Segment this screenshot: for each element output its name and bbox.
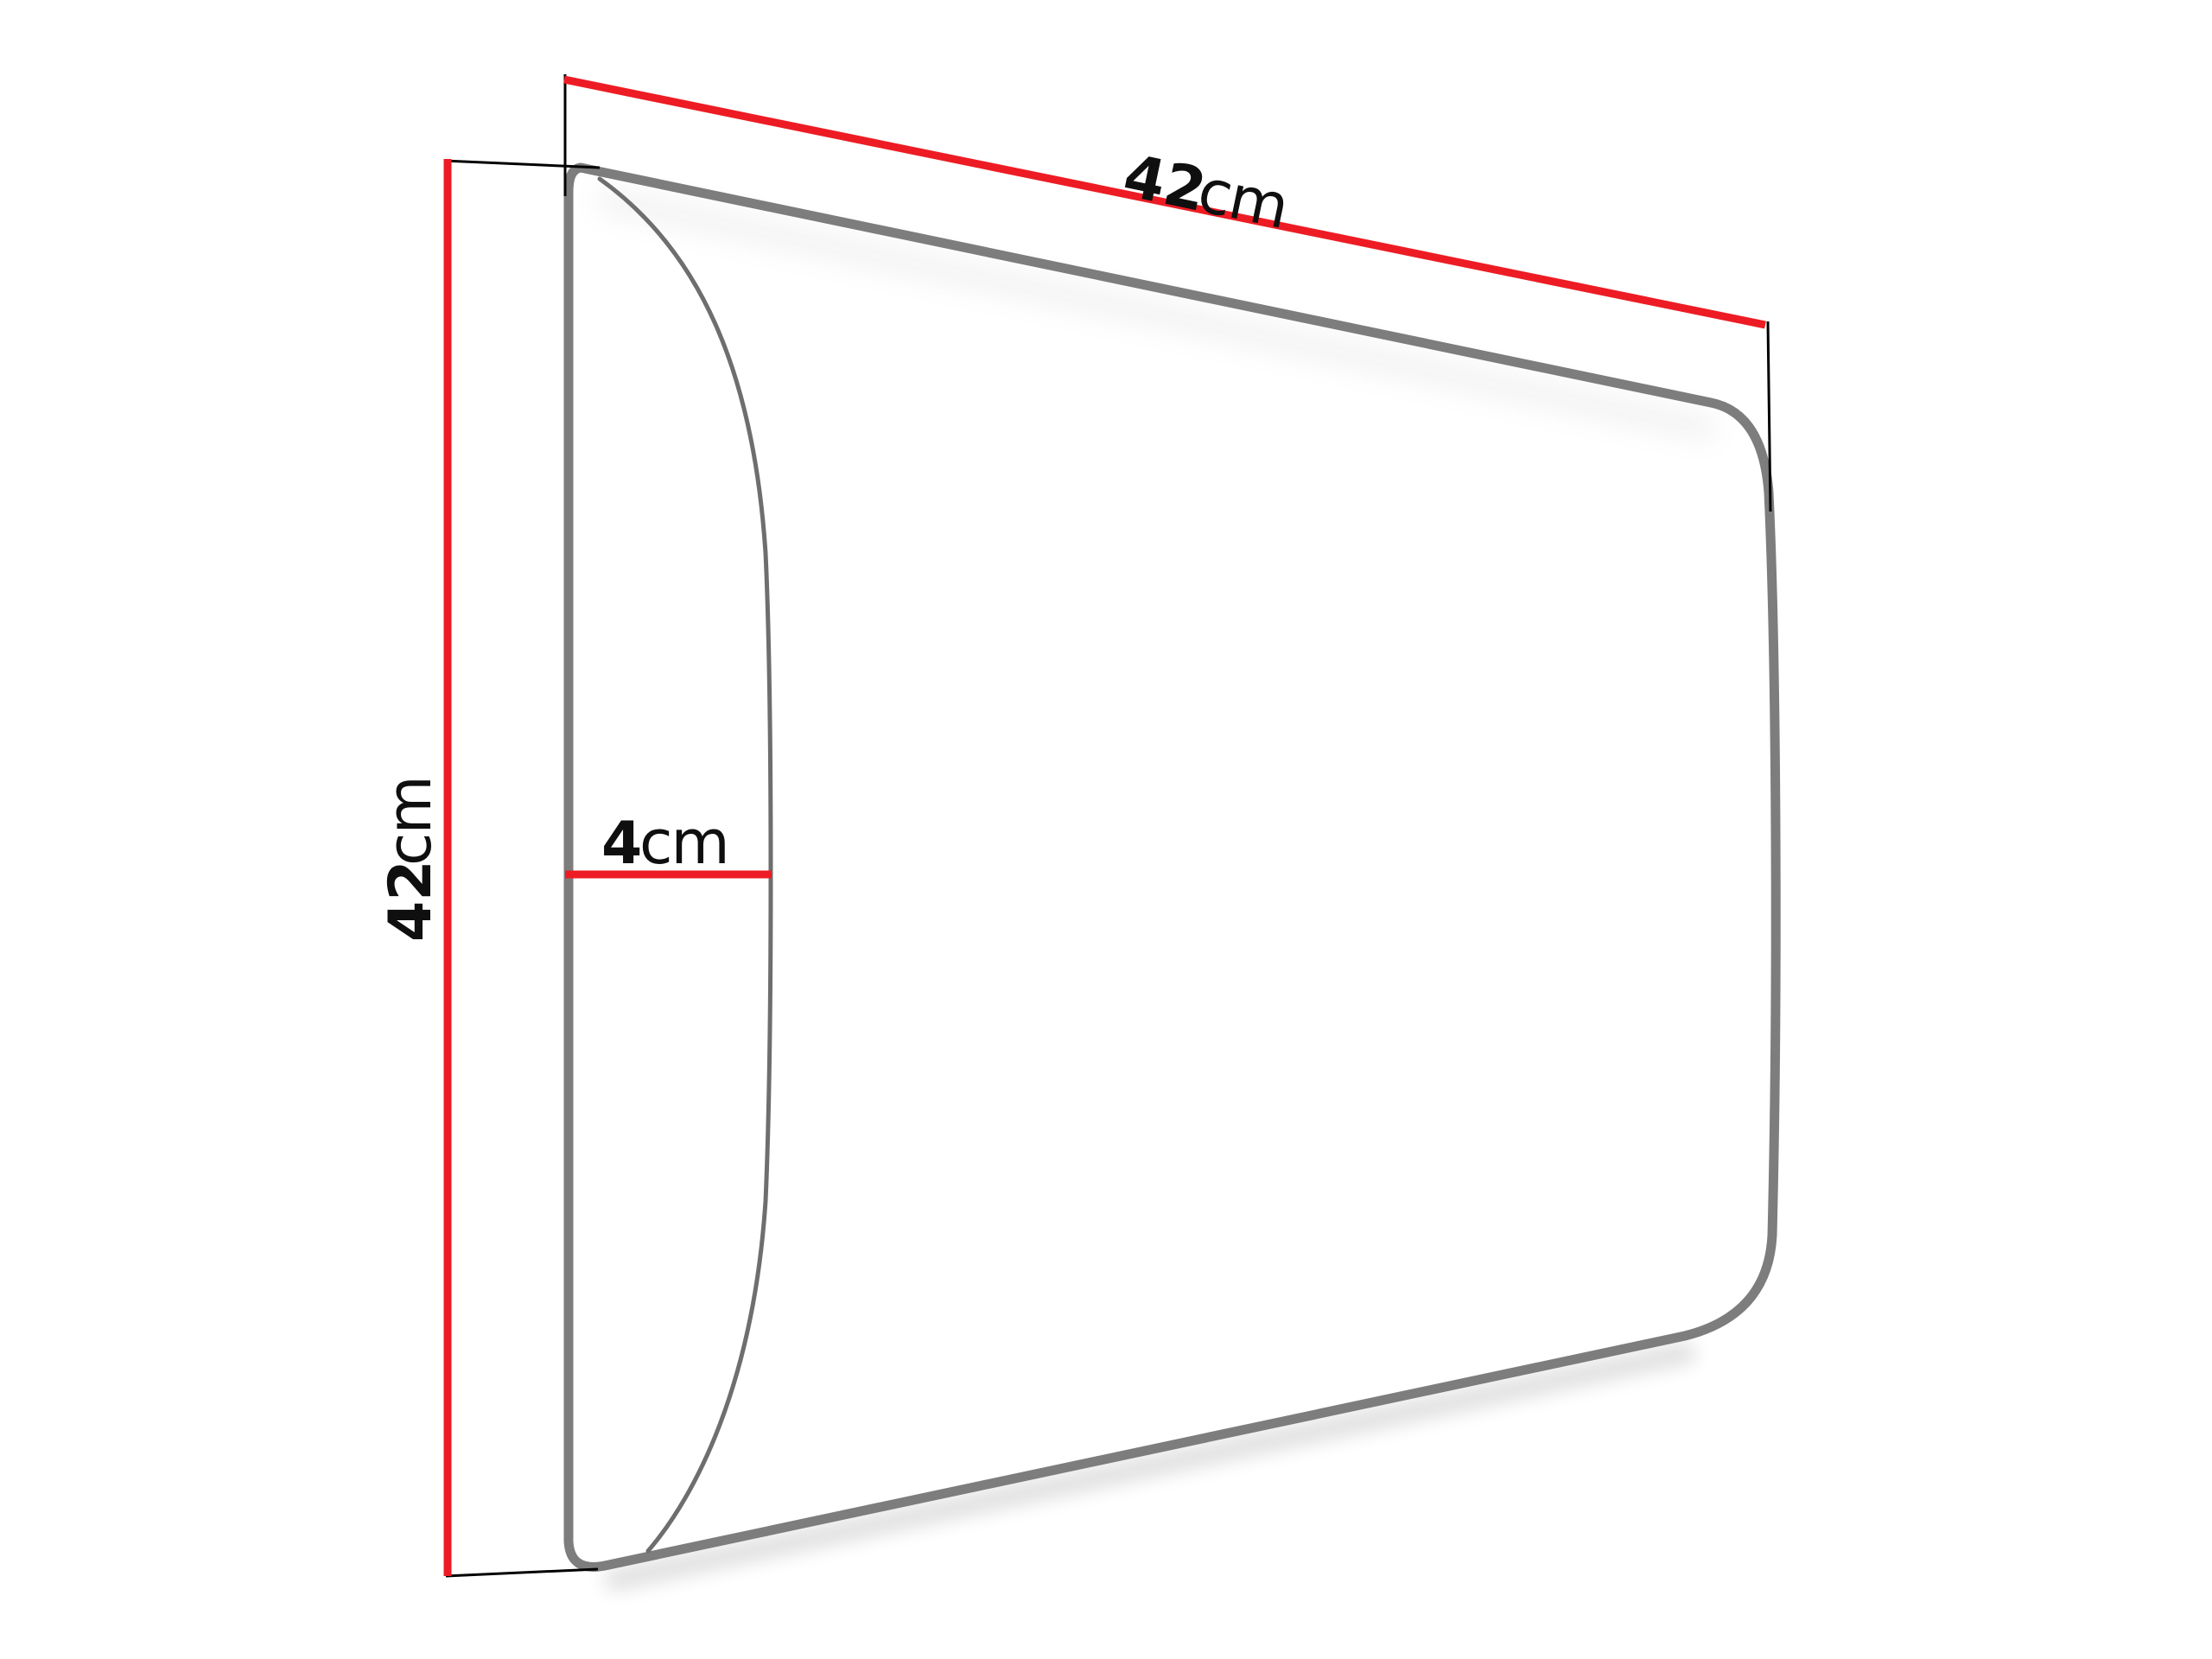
panel-front-outline (569, 168, 1776, 1567)
height-dimension-label: 42 cm (374, 777, 445, 942)
dimension-drawing-svg: 42 cm 42 cm 4 cm (0, 0, 2212, 1659)
height-dimension-unit: cm (374, 777, 445, 866)
width-dimension-unit: cm (1192, 155, 1294, 242)
extension-line-height-bottom (446, 1569, 598, 1576)
height-dimension-value: 42 (377, 860, 445, 942)
depth-dimension-label: 4 cm (601, 807, 728, 878)
depth-dimension-value: 4 (601, 810, 642, 878)
panel-dimension-diagram: 42 cm 42 cm 4 cm (0, 0, 2212, 1659)
width-dimension-label: 42 cm (1118, 139, 1294, 242)
depth-dimension-unit: cm (639, 807, 728, 878)
